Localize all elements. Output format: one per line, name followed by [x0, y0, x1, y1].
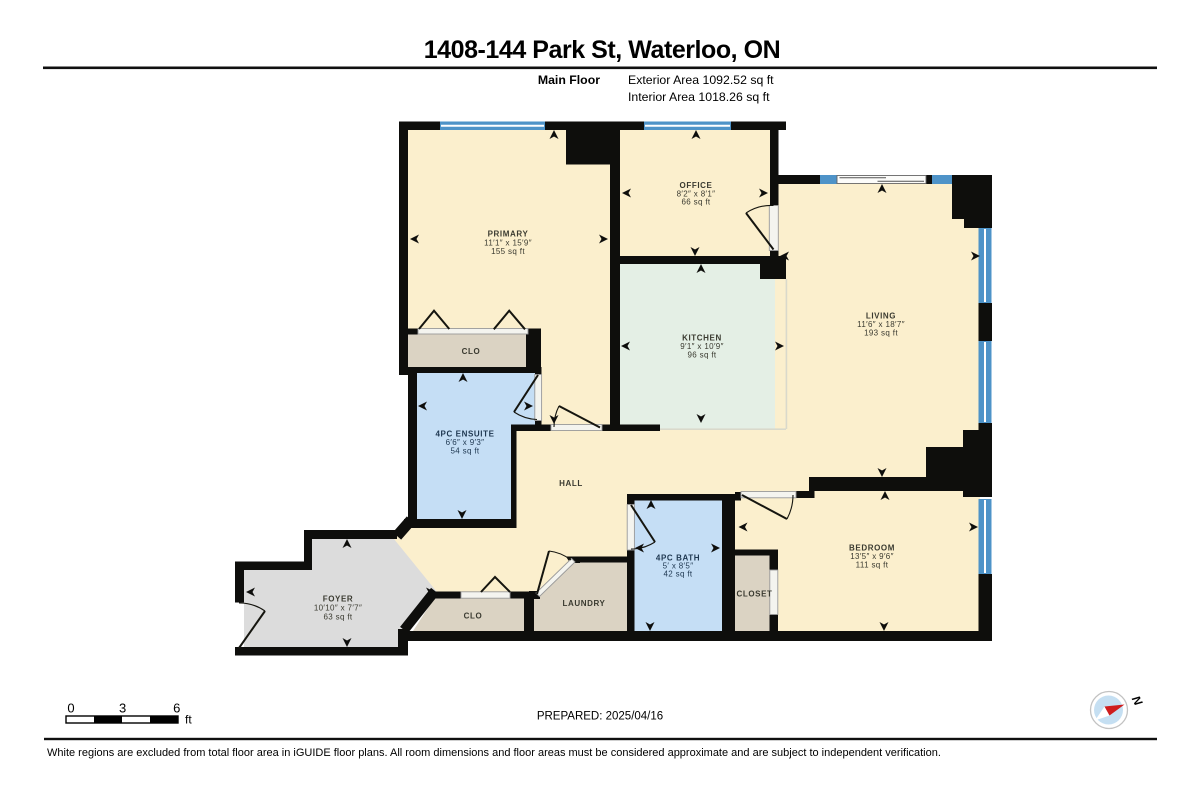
svg-text:Main Floor: Main Floor	[538, 73, 600, 87]
svg-text:1408-144 Park St, Waterloo, ON: 1408-144 Park St, Waterloo, ON	[424, 36, 781, 64]
svg-text:6: 6	[173, 701, 180, 716]
svg-text:Interior Area 1018.26 sq ft: Interior Area 1018.26 sq ft	[628, 90, 770, 104]
svg-text:CLOSET: CLOSET	[736, 590, 772, 599]
svg-text:193 sq ft: 193 sq ft	[864, 329, 898, 338]
svg-text:0: 0	[67, 701, 74, 716]
svg-text:White regions are excluded fro: White regions are excluded from total fl…	[47, 747, 941, 759]
svg-text:ft: ft	[185, 713, 192, 727]
svg-text:66 sq ft: 66 sq ft	[681, 198, 710, 207]
svg-text:FOYER: FOYER	[323, 595, 354, 604]
svg-text:PREPARED: 2025/04/16: PREPARED: 2025/04/16	[537, 711, 663, 723]
svg-text:Exterior Area 1092.52 sq ft: Exterior Area 1092.52 sq ft	[628, 73, 774, 87]
svg-text:3: 3	[119, 701, 126, 716]
svg-text:KITCHEN: KITCHEN	[682, 333, 722, 342]
svg-text:155 sq ft: 155 sq ft	[491, 247, 525, 256]
svg-text:96 sq ft: 96 sq ft	[687, 350, 716, 359]
svg-text:CLO: CLO	[462, 347, 481, 356]
svg-text:LAUNDRY: LAUNDRY	[562, 599, 605, 608]
svg-text:54 sq ft: 54 sq ft	[450, 447, 479, 456]
svg-text:CLO: CLO	[464, 612, 483, 621]
svg-text:HALL: HALL	[559, 479, 583, 488]
svg-text:42 sq ft: 42 sq ft	[663, 570, 692, 579]
svg-text:PRIMARY: PRIMARY	[488, 230, 529, 239]
svg-text:111 sq ft: 111 sq ft	[856, 561, 889, 570]
svg-text:10′10″ x 7′7″: 10′10″ x 7′7″	[314, 604, 362, 613]
svg-text:63 sq ft: 63 sq ft	[323, 613, 352, 622]
